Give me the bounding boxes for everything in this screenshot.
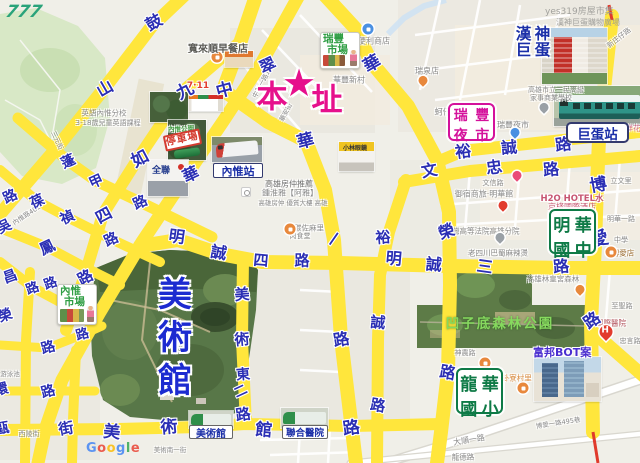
map-pin-icon[interactable] (518, 383, 529, 394)
hanshin-char: 漢 (514, 26, 533, 42)
poi-text: 立文里 (611, 176, 632, 186)
google-logo-letter: o (97, 441, 106, 456)
poi-text: 御宿商旅·明華館 (455, 189, 514, 200)
person-figure (350, 50, 357, 66)
station-label-neiwei[interactable]: 內惟站 (213, 163, 263, 178)
school-char: 中 (573, 236, 595, 261)
night-market-char: 夜 (450, 125, 472, 145)
road-name-char: 路 (542, 155, 560, 180)
road-name-char: 忠 (484, 153, 503, 179)
pxmart-caption: 全聯 (152, 163, 170, 176)
stop-label-text: 聯合醫院 (286, 425, 324, 439)
poi-text: 瑞泉店 (415, 66, 439, 77)
market-card-neiwei[interactable]: 內惟 市場 (57, 284, 97, 325)
hanshin-char: 神 (533, 26, 552, 42)
poi-text: 英語內惟分校 (82, 108, 127, 119)
museum-title-char: 館 (158, 364, 192, 398)
hanshin-char: 巨 (514, 42, 533, 58)
road-name-char: 術 (234, 328, 251, 350)
google-logo-letter: o (107, 441, 116, 456)
school-char: 華 (480, 370, 502, 395)
tower (564, 361, 584, 397)
poi-text: 中學 (614, 235, 628, 245)
ad-marker-icon[interactable] (241, 187, 251, 197)
road-name-char: 四 (253, 249, 270, 271)
fubon-bot-label: 富邦BOT案 (533, 344, 591, 360)
poi-text: 西陵街 (19, 429, 40, 439)
map-pin-icon[interactable] (606, 247, 617, 258)
hanshin-arena-label[interactable]: 漢 神 巨 蛋 (514, 26, 552, 58)
museum-park-title: 美術館 (158, 278, 192, 398)
map-pin-icon[interactable] (363, 24, 374, 35)
museum-title-char: 美 (158, 278, 192, 312)
poi-text: 高雄房仲 優質大樓 高雄 (258, 197, 327, 207)
school-char: 龍 (458, 370, 480, 395)
station-label-dome[interactable]: 巨蛋站 (566, 122, 629, 143)
photo-kobayashi-glasses: 小林眼鏡 (339, 142, 374, 171)
road-name-char: 三 (475, 252, 494, 278)
stop-label-text: 美術館 (196, 425, 226, 440)
road-name-char: 明 (385, 244, 403, 269)
tram-car (191, 414, 231, 425)
tra-train (215, 140, 258, 158)
museum-title-char: 術 (158, 321, 192, 355)
road-name-char: 術 (159, 412, 178, 438)
photo-neiwei-train (212, 137, 262, 162)
school-label-minghua[interactable]: 明 華 國 中 (549, 209, 596, 254)
poi-text: 龍德路 (452, 452, 475, 463)
road-name-char: 館 (254, 415, 273, 441)
google-logo-letter: G (86, 441, 97, 456)
market-mini-photo (323, 55, 345, 66)
market-card-ruifeng[interactable]: 瑞豐 市場 (320, 32, 360, 69)
night-market-label[interactable]: 瑞 豐 夜 市 (448, 103, 495, 141)
school-label-longhua[interactable]: 龍 華 國 小 (456, 368, 503, 414)
road-name-char: 裕 (375, 226, 392, 248)
night-market-char: 瑞 (450, 105, 472, 125)
hanshin-plaza-watermark: 漢神巨蛋購物廣場 (556, 17, 620, 28)
poi-text: 游泳池 (0, 368, 20, 378)
map-canvas[interactable]: 停車場 全聯 小林眼鏡 內惟站 巨蛋站 美術館 聯合醫院 (0, 0, 640, 463)
map-pin-icon[interactable] (480, 358, 491, 369)
main-site-char: 址 (312, 75, 343, 120)
poi-text: 明華一路 (607, 214, 635, 224)
google-logo: Google (86, 441, 140, 456)
road-name-char: 明 (167, 222, 186, 248)
tram-car (283, 412, 326, 424)
road-name-char: 誠 (370, 311, 387, 333)
tower (542, 363, 558, 397)
night-market-char: 豐 (472, 105, 494, 125)
poi-text: 神農路 (455, 348, 476, 358)
hanshin-char: 蛋 (533, 42, 552, 58)
aozihdi-park-title: 凹子底森林公園 (446, 312, 555, 332)
school-char: 國 (458, 395, 480, 420)
poi-text: 便利商店 (358, 36, 390, 47)
person-figure (87, 306, 94, 322)
poi-text: 文信路 (483, 178, 504, 188)
poi-text: 3-18歲兒童英語課程 (76, 118, 141, 128)
map-pin-icon[interactable] (285, 224, 296, 235)
road-name-char: 路 (341, 412, 361, 439)
photo-fubon-towers (534, 357, 601, 401)
school-char: 華 (573, 211, 595, 236)
market-mini-photo (60, 309, 84, 322)
poi-text: 家事商業學校 (530, 93, 572, 103)
road-name-char: 路 (234, 403, 252, 426)
podium (586, 383, 599, 397)
road-name-char: 路 (294, 250, 309, 271)
handwritten-watermark: 777 (4, 2, 44, 22)
poi-text: 美術南一街 (154, 444, 187, 454)
stop-label-museum[interactable]: 美術館 (189, 425, 233, 439)
road-name-char: 誠 (425, 250, 443, 275)
google-logo-letter: g (116, 441, 126, 456)
road-name-char: 美 (102, 417, 121, 443)
poi-text: 至聖路 (612, 301, 633, 311)
poi-text: 忠言路 (620, 336, 640, 346)
breakfast-shop-label: 寬來順早餐店 (188, 40, 248, 55)
station-label-text: 巨蛋站 (577, 123, 618, 143)
school-char: 明 (551, 211, 573, 236)
school-char: 小 (480, 395, 502, 420)
stop-label-hospital[interactable]: 聯合醫院 (282, 425, 328, 439)
google-logo-letter: e (131, 441, 140, 456)
station-label-text: 內惟站 (222, 163, 255, 179)
kobayashi-caption: 小林眼鏡 (343, 143, 367, 152)
night-market-char: 市 (472, 125, 494, 145)
yes319-watermark: yes319房屋市集 (545, 4, 614, 17)
road-name-char: 美 (234, 283, 251, 305)
school-char: 國 (551, 236, 573, 261)
